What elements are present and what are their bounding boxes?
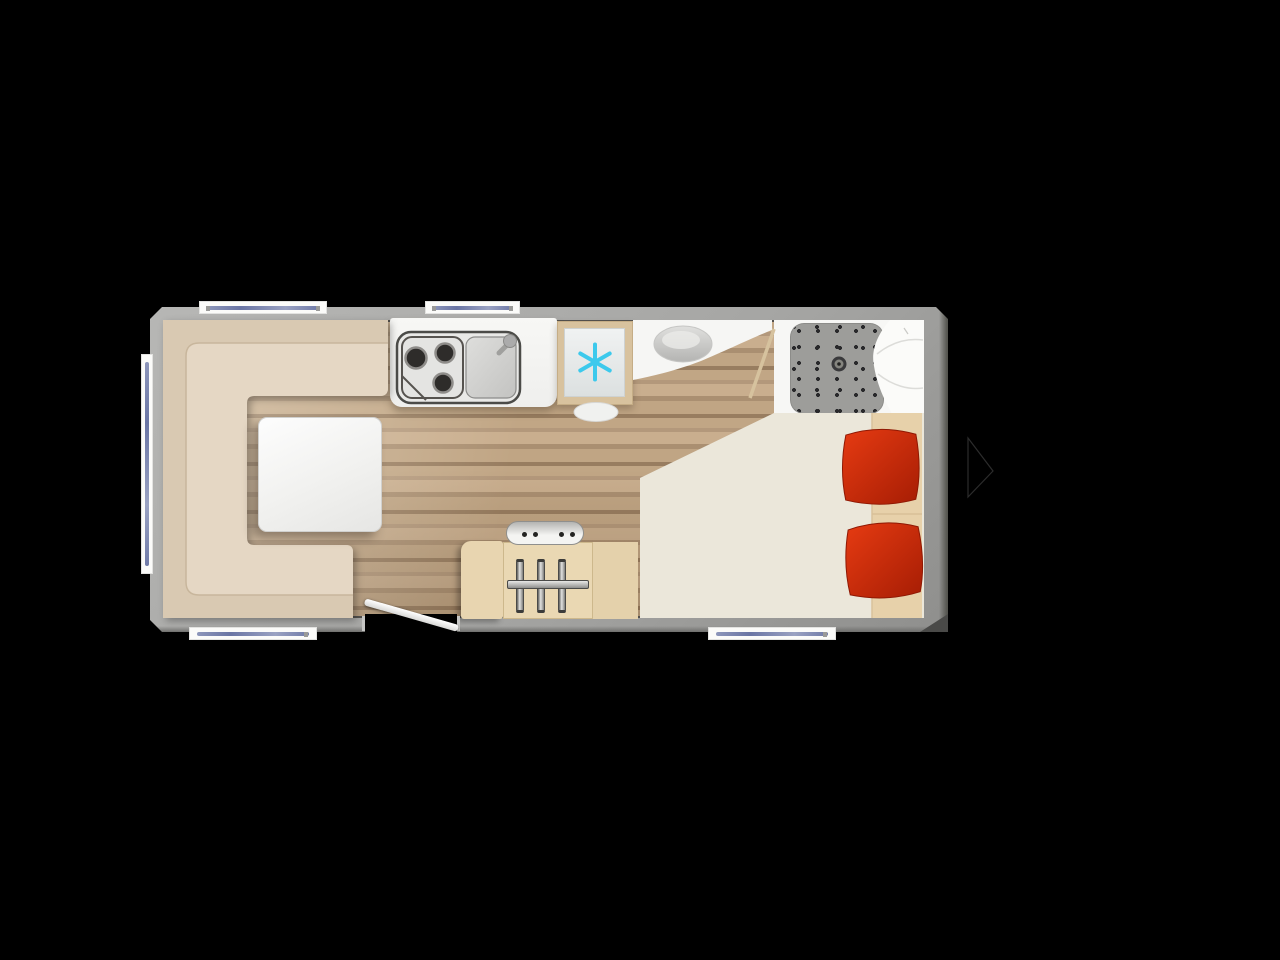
window-latch (432, 306, 436, 311)
fridge-door-panel (564, 328, 625, 397)
window-glass-line (433, 306, 512, 310)
heater-control-unit (506, 521, 584, 545)
window-latch (509, 306, 513, 311)
window-latch (304, 632, 308, 637)
window-glass-line (207, 306, 319, 310)
window-left-side (141, 354, 153, 574)
shower-tray (790, 323, 884, 414)
window-glass-line (197, 632, 309, 636)
lounge-table (258, 417, 382, 532)
window-glass-line (716, 632, 828, 636)
heater-cabinet-right-panel (593, 542, 638, 619)
floorplan-canvas (0, 0, 1280, 960)
window-glass-line (145, 362, 149, 566)
door-jamb (362, 616, 365, 631)
window-bottom-right (708, 627, 836, 640)
fridge (557, 321, 633, 405)
control-dot (522, 532, 527, 537)
control-dot (559, 532, 564, 537)
wall-bevel-right (939, 307, 948, 632)
heater-grill-crossbar (507, 580, 589, 589)
kitchen-counter (390, 318, 557, 407)
window-top-left (199, 301, 327, 314)
control-dot (533, 532, 538, 537)
window-top-right (425, 301, 520, 314)
next-arrow-icon[interactable] (968, 438, 993, 497)
window-latch (206, 306, 210, 311)
window-latch (316, 306, 320, 311)
window-latch (823, 632, 827, 637)
heater-cabinet-left-panel (461, 541, 503, 619)
window-bottom-left (189, 627, 317, 640)
control-dot (570, 532, 575, 537)
